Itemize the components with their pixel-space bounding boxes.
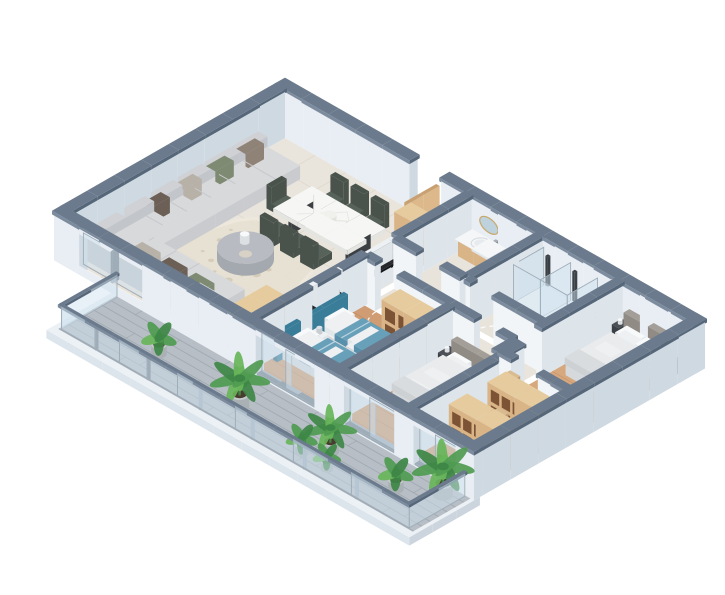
railing-post — [147, 357, 151, 381]
nightstand-decor — [445, 346, 450, 352]
floor-plan-render — [0, 0, 725, 595]
isometric-scene — [0, 0, 725, 595]
railing-post — [95, 327, 99, 351]
nightstand-decor — [618, 318, 623, 324]
